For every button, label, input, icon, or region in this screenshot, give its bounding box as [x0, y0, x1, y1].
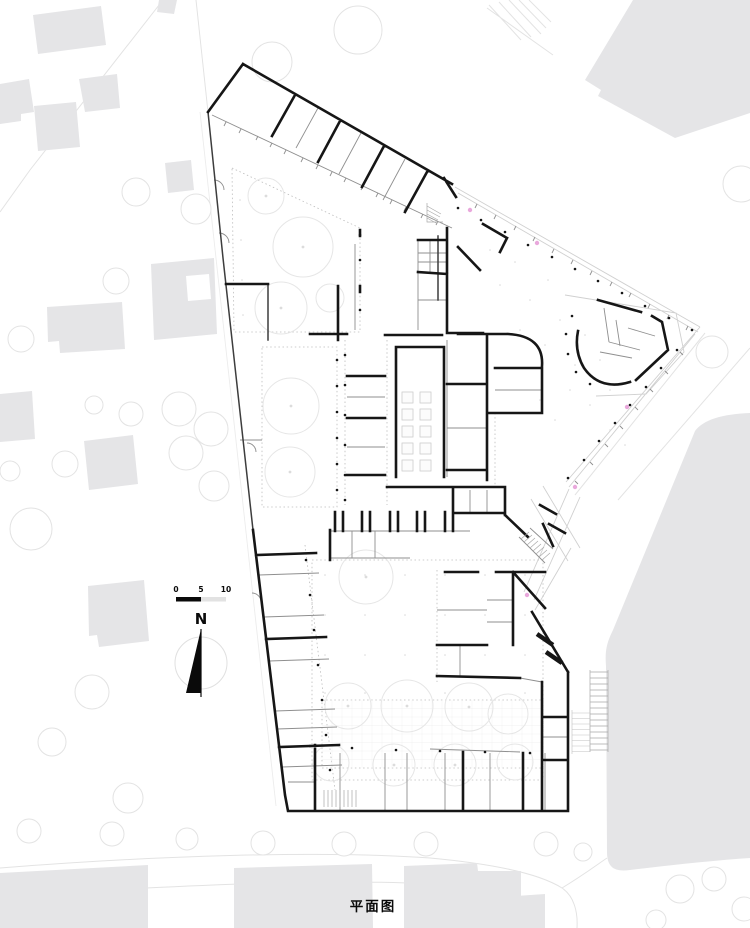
interior-stair-south: [324, 790, 356, 807]
link-wall-bars: [537, 634, 562, 663]
property-line: [200, 112, 276, 806]
furniture-tables: [402, 392, 431, 471]
courtyard-trees: [248, 178, 533, 786]
scale-bar: 0 5 10: [173, 585, 231, 602]
pavilion-curved-wall: [577, 331, 630, 385]
exterior-stair: [590, 670, 608, 752]
context-building-southeast: [606, 413, 750, 870]
scale-label-0: 0: [173, 585, 178, 594]
drawing-caption: 平面图: [350, 899, 397, 915]
scale-label-5: 5: [198, 585, 203, 594]
scale-bar-light-segment: [201, 597, 226, 602]
floorplan-drawing: 0 5 10 N 平面图: [0, 0, 750, 928]
scale-bar-black-segment: [176, 597, 201, 602]
north-arrow: N: [175, 610, 227, 697]
scale-label-10: 10: [221, 585, 231, 594]
courtyard-borders: [232, 168, 543, 790]
parking-lines: [487, 0, 553, 55]
north-label: N: [195, 610, 208, 628]
walls-heavy: [208, 64, 668, 811]
floorplan-page: 0 5 10 N 平面图: [0, 0, 750, 928]
exterior-stair-lower-flight: [572, 710, 590, 754]
